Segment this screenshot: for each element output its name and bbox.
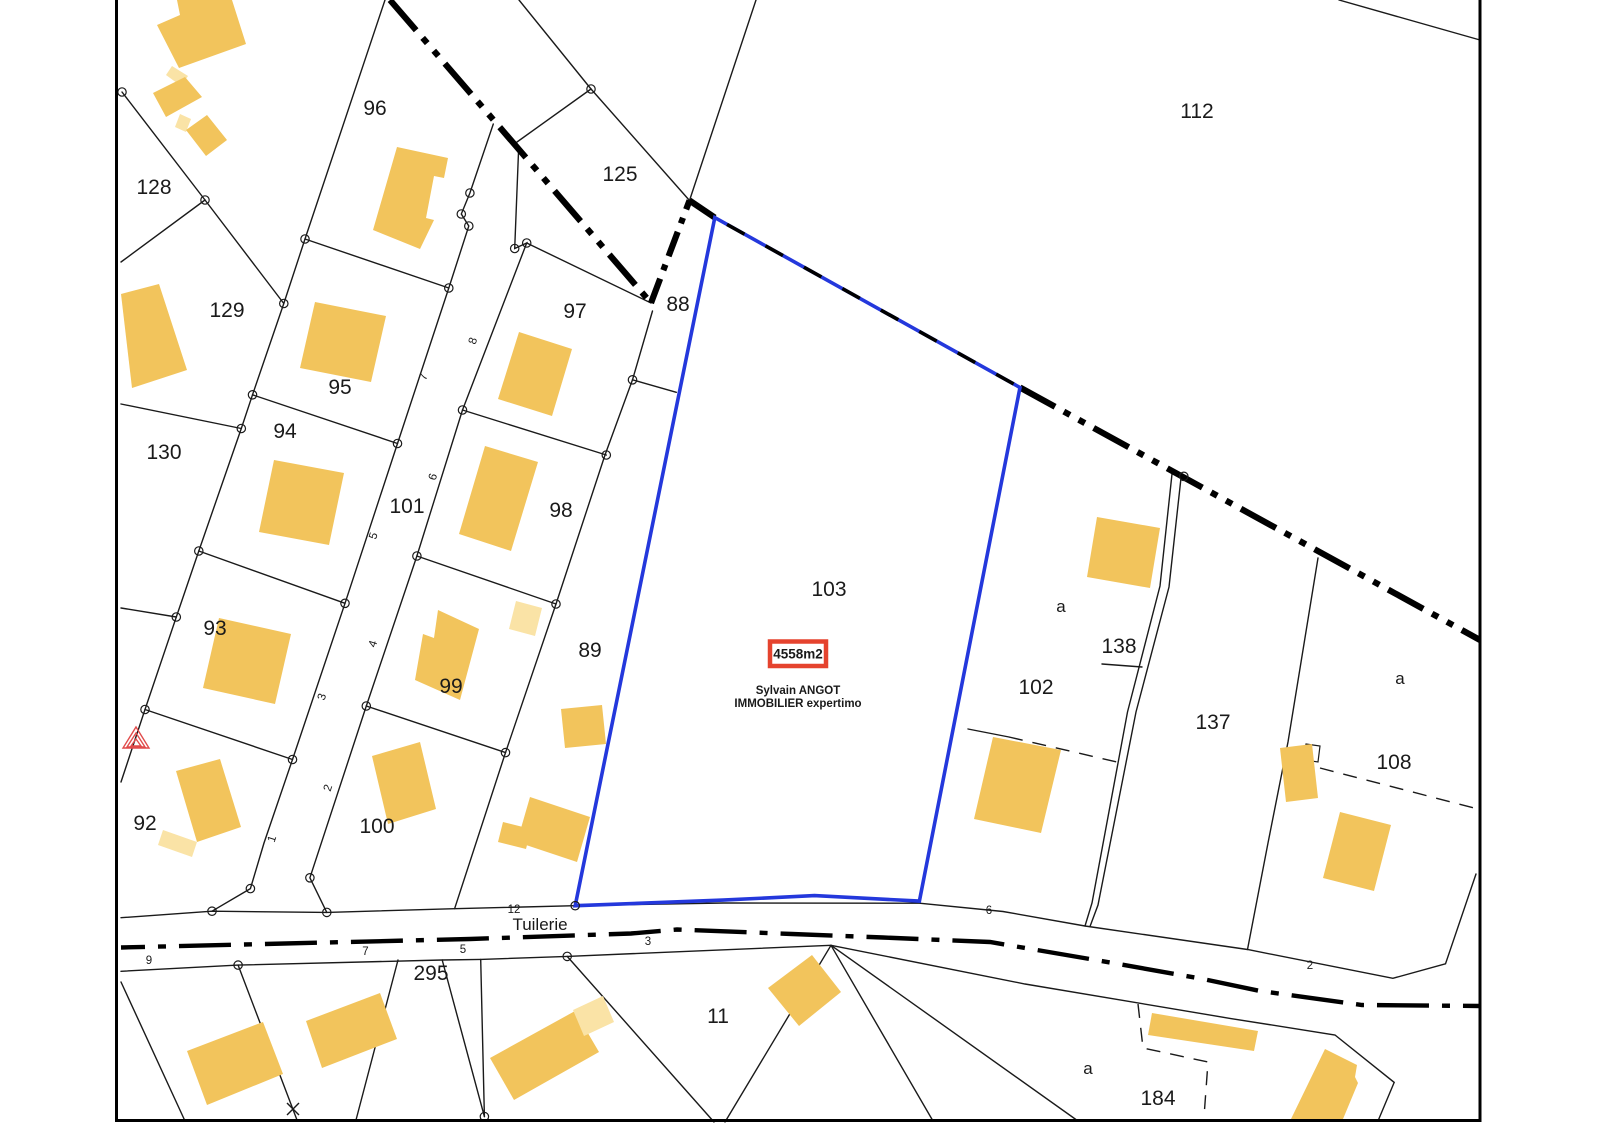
svg-text:4558m2: 4558m2 bbox=[773, 647, 823, 662]
svg-text:88: 88 bbox=[666, 293, 689, 316]
svg-text:99: 99 bbox=[439, 675, 462, 698]
svg-text:100: 100 bbox=[359, 815, 394, 838]
svg-text:a: a bbox=[1395, 669, 1405, 688]
svg-text:138: 138 bbox=[1101, 635, 1136, 658]
svg-text:96: 96 bbox=[363, 97, 386, 120]
svg-text:184: 184 bbox=[1140, 1087, 1175, 1110]
svg-text:108: 108 bbox=[1376, 751, 1411, 774]
svg-text:130: 130 bbox=[146, 441, 181, 464]
svg-text:98: 98 bbox=[549, 499, 572, 522]
svg-text:103: 103 bbox=[811, 578, 846, 601]
svg-text:2: 2 bbox=[1307, 960, 1313, 972]
svg-text:11: 11 bbox=[707, 1005, 729, 1028]
svg-text:5: 5 bbox=[460, 944, 466, 956]
svg-text:94: 94 bbox=[273, 420, 297, 443]
svg-text:a: a bbox=[1056, 597, 1066, 616]
svg-text:125: 125 bbox=[602, 163, 637, 186]
svg-text:3: 3 bbox=[645, 936, 651, 948]
svg-text:89: 89 bbox=[578, 639, 601, 662]
svg-text:6: 6 bbox=[986, 905, 992, 917]
svg-text:129: 129 bbox=[209, 299, 244, 322]
svg-text:128: 128 bbox=[136, 176, 171, 199]
svg-text:95: 95 bbox=[328, 376, 351, 399]
svg-text:a: a bbox=[1083, 1059, 1093, 1078]
svg-text:92: 92 bbox=[133, 812, 156, 835]
svg-text:97: 97 bbox=[563, 300, 586, 323]
svg-text:112: 112 bbox=[1180, 100, 1213, 123]
svg-text:102: 102 bbox=[1018, 676, 1053, 699]
svg-text:IMMOBILIER expertimo: IMMOBILIER expertimo bbox=[734, 698, 861, 710]
svg-text:Sylvain ANGOT: Sylvain ANGOT bbox=[756, 685, 841, 697]
svg-text:137: 137 bbox=[1195, 711, 1230, 734]
svg-text:93: 93 bbox=[203, 617, 226, 640]
svg-text:Tuilerie: Tuilerie bbox=[512, 915, 567, 934]
svg-text:7: 7 bbox=[362, 946, 368, 958]
svg-text:9: 9 bbox=[146, 955, 152, 967]
svg-text:295: 295 bbox=[413, 962, 448, 985]
svg-text:101: 101 bbox=[389, 495, 424, 518]
